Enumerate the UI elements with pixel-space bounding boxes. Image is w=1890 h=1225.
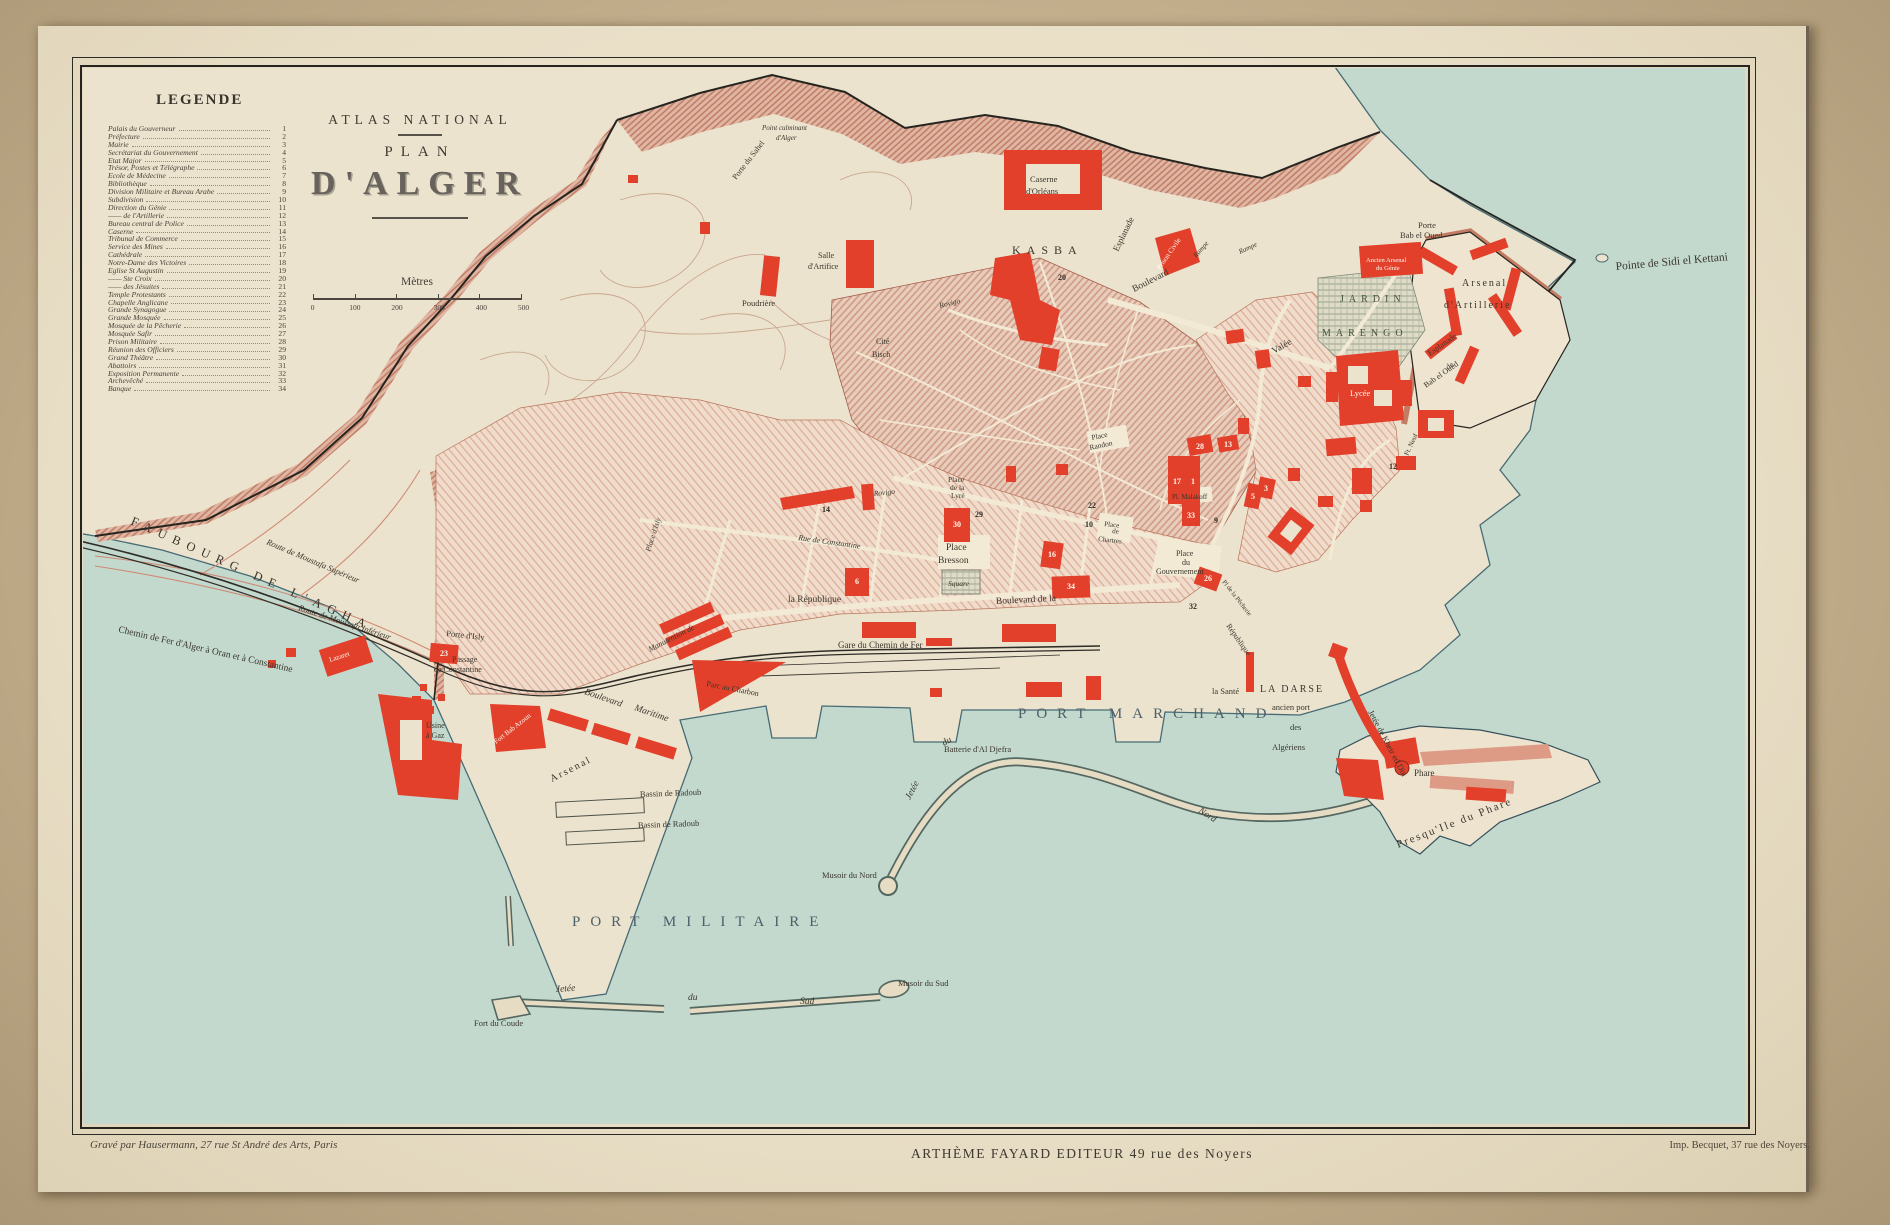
scale-tick-labels: 0 100 200 300 400 500: [306, 303, 528, 313]
map-title-alger: D'ALGER: [300, 165, 540, 203]
legend: LEGENDE Palais du Gouverneur1 Préfecture…: [108, 92, 286, 393]
engraver-credit: Gravé par Hausermann, 27 rue St André de…: [90, 1139, 337, 1151]
publisher-credit: ARTHÈME FAYARD EDITEUR 49 rue des Noyers: [782, 1146, 1382, 1162]
legend-item: Banque34: [108, 385, 286, 393]
title-block: ATLAS NATIONAL PLAN D'ALGER: [300, 112, 540, 225]
atlas-series-title: ATLAS NATIONAL: [300, 112, 540, 128]
scanned-map-page: { "legend": { "title": "LEGENDE", "items…: [0, 0, 1890, 1225]
legend-item: Archevêché33: [108, 378, 286, 386]
title-rule: [372, 217, 468, 219]
scale-rule: [313, 294, 521, 300]
legend-item: Préfecture2: [108, 133, 286, 141]
legend-title: LEGENDE: [156, 92, 286, 109]
scale-bar: Mètres 0 100 200 300 400 500: [306, 276, 528, 313]
scale-unit-label: Mètres: [306, 276, 528, 288]
map-title-plan: PLAN: [300, 144, 540, 161]
legend-item: Bureau central de Police13: [108, 220, 286, 228]
title-rule: [398, 134, 442, 136]
printer-credit: Imp. Becquet, 37 rue des Noyers.: [1598, 1140, 1810, 1151]
